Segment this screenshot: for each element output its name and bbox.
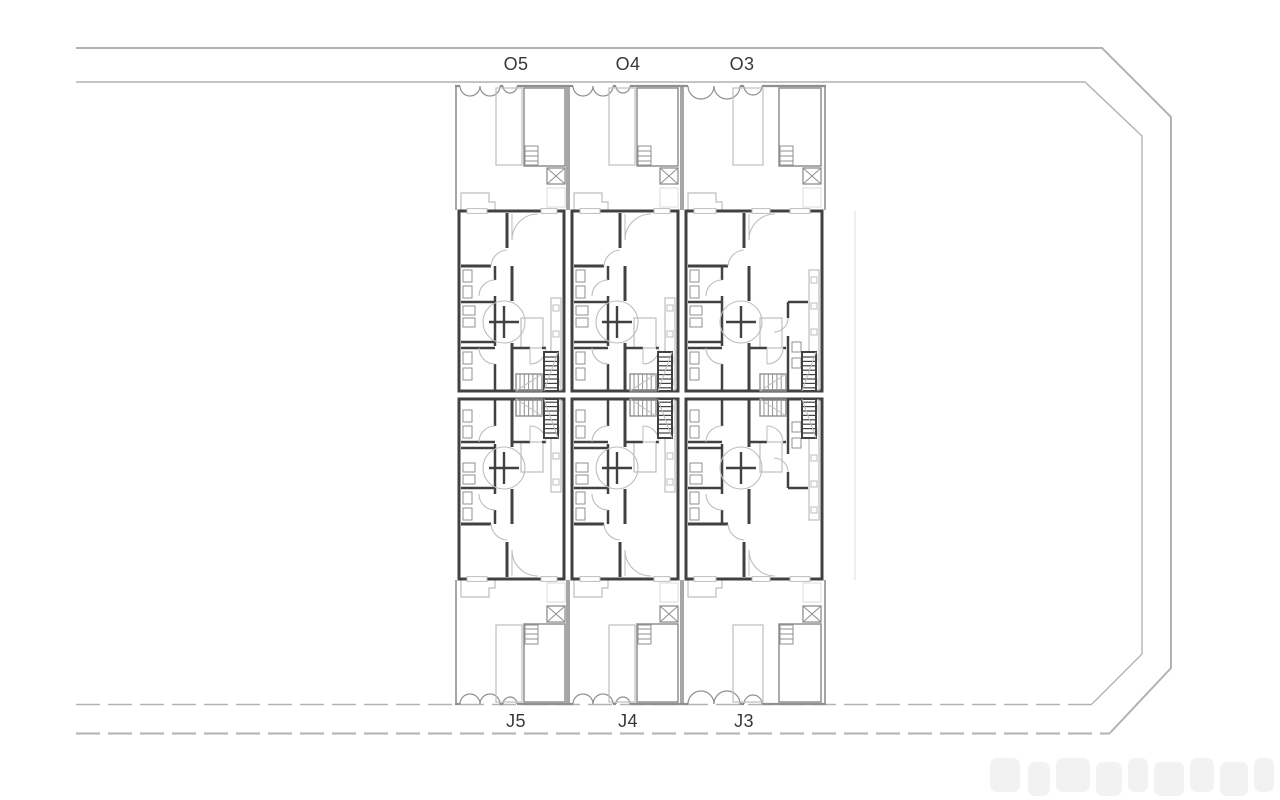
window	[694, 209, 716, 214]
site-plan-drawing: O5 O4 O3 J5 J4 J3	[0, 0, 1280, 800]
deck	[733, 88, 763, 165]
window	[752, 209, 770, 214]
pool	[779, 88, 821, 166]
top-row-label-0: O5	[504, 54, 529, 74]
porch-notch	[574, 193, 608, 210]
porch-notch	[461, 193, 495, 210]
watermark-blob	[1128, 758, 1148, 792]
plot-column-1	[568, 86, 682, 704]
watermark-blob	[1190, 758, 1214, 792]
plots	[455, 86, 826, 704]
faint-box	[660, 188, 678, 207]
bottom-row-label-2: J3	[734, 711, 754, 731]
bottom-row-label-0: J5	[506, 711, 526, 731]
plot-lower-half-0	[455, 399, 568, 704]
watermark-blob	[1254, 758, 1274, 792]
gate-arc	[460, 86, 480, 96]
plot-column-0	[455, 86, 568, 704]
floor-plan-page: O5 O4 O3 J5 J4 J3	[0, 0, 1280, 800]
plot-upper-half-1	[568, 86, 682, 391]
watermark-blob	[1096, 762, 1122, 796]
watermark-blob	[1154, 762, 1184, 796]
window	[654, 209, 670, 214]
window	[467, 209, 487, 214]
plot-column-2	[682, 86, 826, 704]
watermark	[990, 758, 1274, 796]
deck	[609, 88, 635, 165]
gate-arc	[688, 86, 714, 99]
plot-upper-half-2	[682, 86, 826, 391]
pool	[524, 88, 565, 166]
window	[790, 209, 810, 214]
window	[541, 209, 557, 214]
gate-arc	[573, 86, 593, 96]
watermark-blob	[1220, 762, 1248, 796]
window	[580, 209, 600, 214]
watermark-blob	[1028, 762, 1050, 796]
plot-lower-half-2	[682, 399, 826, 704]
faint-box	[803, 188, 821, 207]
site-boundary-inner	[76, 82, 1142, 704]
plot-lower-half-1	[568, 399, 682, 704]
deck	[496, 88, 522, 165]
gate-arc	[744, 86, 762, 95]
gate-arc	[616, 86, 630, 93]
faint-box	[547, 188, 565, 207]
top-row-label-1: O4	[616, 54, 641, 74]
top-row-label-2: O3	[730, 54, 755, 74]
watermark-blob	[990, 758, 1020, 792]
porch-notch	[688, 193, 722, 210]
plot-upper-half-0	[455, 86, 568, 391]
gate-arc	[503, 86, 517, 93]
pool	[637, 88, 678, 166]
bottom-row-label-1: J4	[618, 711, 638, 731]
watermark-blob	[1056, 758, 1090, 792]
